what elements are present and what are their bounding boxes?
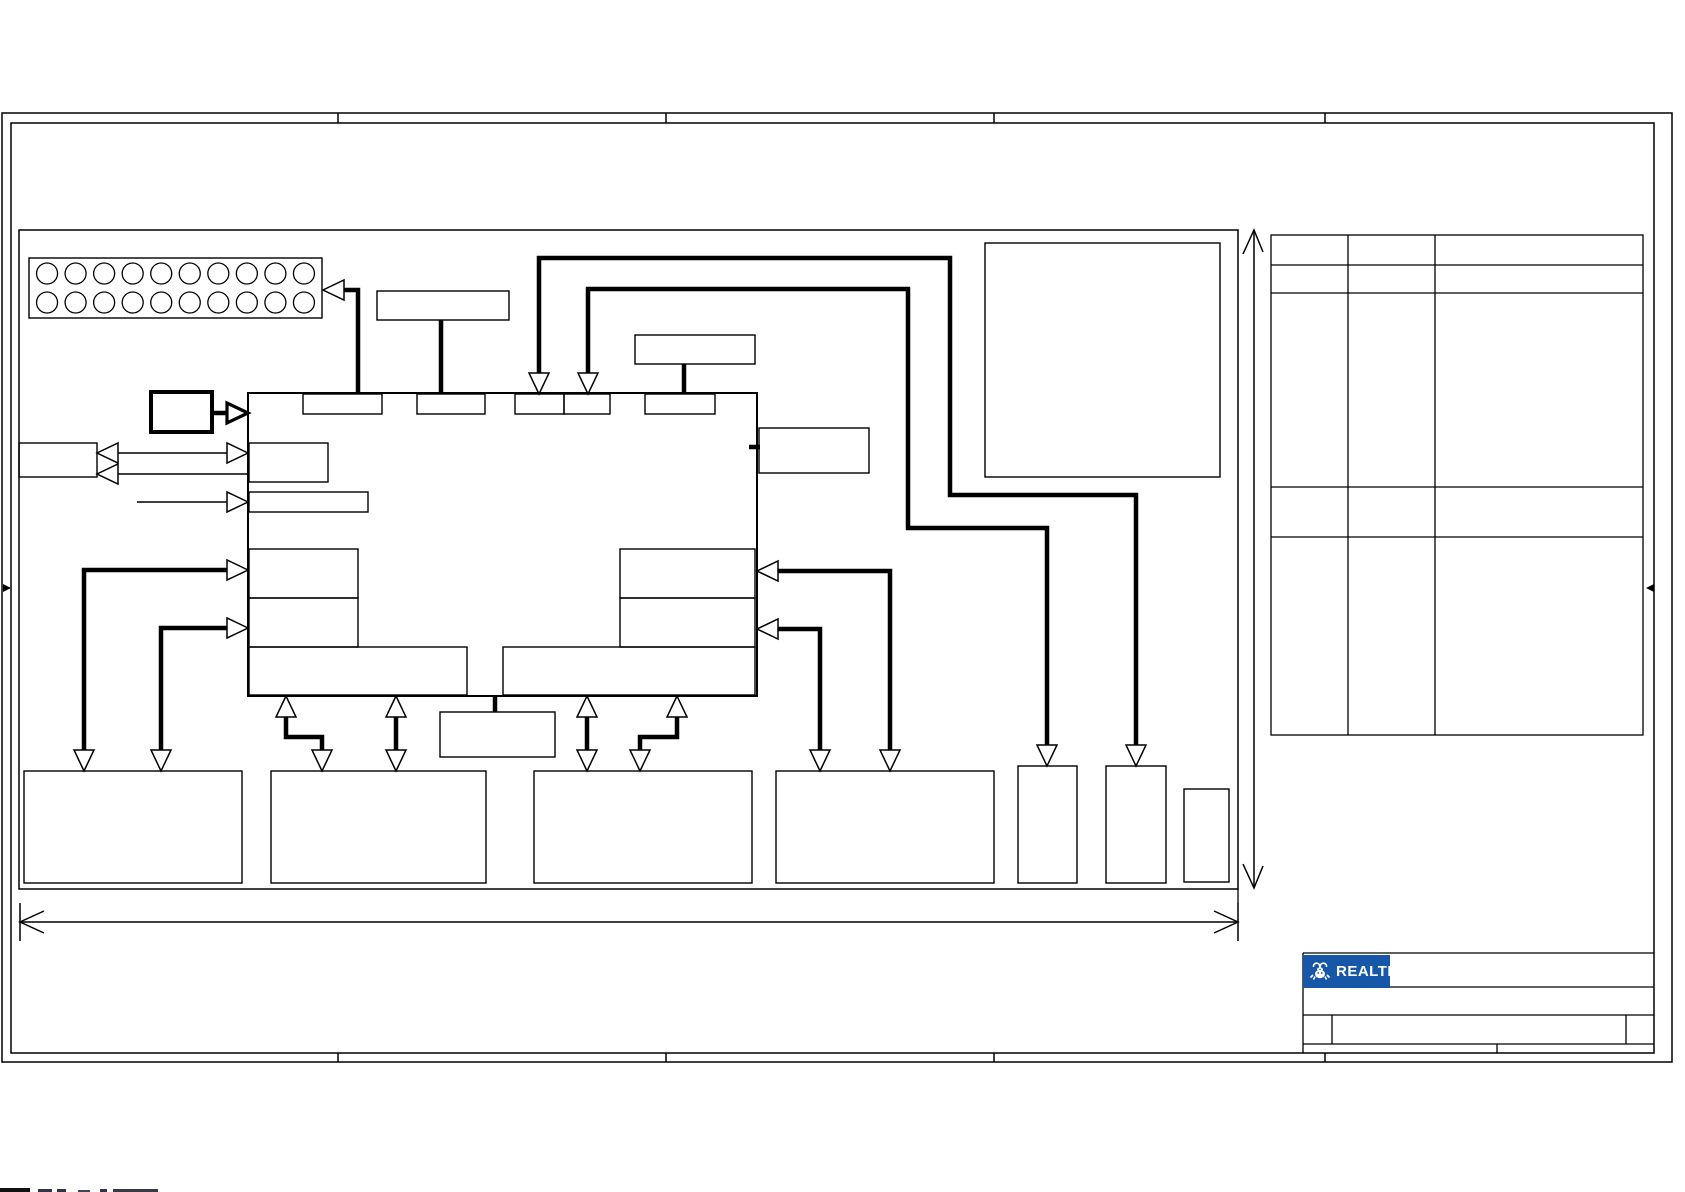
schematic-sheet: REALTEK: [0, 0, 1685, 1192]
big-topright-box: [985, 243, 1220, 477]
arrow-pin4-down: [578, 373, 598, 394]
dimension-arrowhead-up: [1243, 230, 1263, 254]
dimension-arrowhead-down: [1243, 864, 1263, 888]
connector-pin-circle: [179, 263, 200, 284]
wire-connector: [343, 290, 358, 392]
arrow-bus1-down: [386, 750, 406, 771]
arrow-smallbox1-down: [1037, 745, 1057, 766]
small-box-1: [1018, 766, 1077, 883]
right-side-box: [759, 428, 869, 473]
connector-pin-circle: [65, 292, 86, 313]
arrow-bus2-down: [577, 750, 597, 771]
chip-left-box-1: [249, 443, 328, 482]
bottom-box-3: [534, 771, 752, 883]
arrow-into-connector: [323, 280, 344, 300]
chip-left-box-4: [249, 598, 358, 647]
arrow-elbowL-down: [312, 750, 332, 771]
wire-left-2: [161, 628, 228, 751]
bottom-box-1: [24, 771, 242, 883]
chip-bottom-box-left: [249, 647, 467, 695]
small-box-3: [1184, 789, 1229, 882]
wire-right-1: [777, 571, 890, 751]
arrow-b1-a: [74, 750, 94, 771]
connector-pin-circle: [37, 263, 58, 284]
arrow-b1-b: [151, 750, 171, 771]
connector-pin-circle: [236, 263, 257, 284]
crystal-box: [151, 392, 212, 432]
pin-box-2: [417, 394, 485, 414]
chip-bottom-box-right: [503, 647, 755, 695]
connector-pin-circle: [293, 263, 314, 284]
top-box-2: [635, 335, 755, 364]
connector-pin-circle: [151, 263, 172, 284]
frame-outer-border: [2, 113, 1672, 1062]
wire-elbow-left: [286, 716, 322, 751]
wire-route-b: [588, 289, 1047, 746]
pin-box-3: [515, 394, 564, 414]
connector-pin-circle: [265, 292, 286, 313]
arrow-io-left-2: [97, 464, 118, 484]
left-io-box: [19, 443, 97, 477]
arrow-elbowL-up: [276, 696, 296, 717]
connector-pin-circle: [122, 292, 143, 313]
connector-block: [29, 258, 322, 318]
mid-bottom-box: [440, 712, 555, 757]
connector-pin-circle: [265, 263, 286, 284]
wire-left-1: [84, 570, 228, 751]
connector-pin-circle: [37, 292, 58, 313]
diagram-area-box: [19, 230, 1238, 889]
arrow-pin3-down: [529, 373, 549, 394]
bottom-box-2: [271, 771, 486, 883]
chip-left-box-2: [249, 492, 368, 512]
arrow-chipleft-2: [227, 492, 248, 512]
osc-box: [377, 291, 509, 320]
realtek-logo-text: REALTEK: [1336, 964, 1409, 979]
frame-center-marker-right: [1646, 584, 1654, 592]
wire-right-2: [777, 629, 820, 751]
arrow-chipright-2: [757, 619, 778, 639]
arrow-b4-a: [880, 750, 900, 771]
connector-pin-circle: [208, 263, 229, 284]
pin-box-4: [564, 394, 610, 414]
chip-right-box-2: [620, 598, 755, 647]
arrow-elbowR-up: [667, 696, 687, 717]
frame-inner-border: [11, 123, 1654, 1053]
realtek-logo: REALTEK: [1303, 955, 1390, 988]
pin-box-1: [303, 394, 382, 414]
arrow-chipleft-4: [227, 618, 248, 638]
connector-pin-circle: [94, 292, 115, 313]
chip-right-box-1: [620, 549, 755, 598]
connector-pin-circle: [65, 263, 86, 284]
reference-table-outline: [1271, 235, 1643, 735]
arrow-crystal-right: [227, 403, 248, 423]
frame-center-marker-left: [3, 584, 11, 592]
arrow-chipleft-1: [227, 443, 248, 463]
arrow-b4-b: [810, 750, 830, 771]
connector-pin-circle: [236, 292, 257, 313]
arrow-smallbox2-down: [1126, 745, 1146, 766]
arrow-io-left-1: [97, 443, 118, 463]
connector-pin-circle: [208, 292, 229, 313]
connector-pin-circle: [122, 263, 143, 284]
connector-pin-circle: [94, 263, 115, 284]
schematic-canvas: [0, 0, 1685, 1192]
arrow-bus2-up: [577, 696, 597, 717]
chip-left-box-3: [249, 549, 358, 598]
connector-pin-circle: [293, 292, 314, 313]
connector-pin-circle: [179, 292, 200, 313]
connector-pin-circle: [151, 292, 172, 313]
arrow-chipleft-3: [227, 560, 248, 580]
arrow-chipright-1: [757, 561, 778, 581]
cropped-text-fragment: [0, 1188, 30, 1192]
small-box-2: [1106, 766, 1166, 883]
arrow-elbowR-down: [630, 750, 650, 771]
bottom-box-4: [776, 771, 994, 883]
arrow-bus1-up: [386, 696, 406, 717]
wire-elbow-right: [640, 716, 677, 751]
realtek-crab-icon: [1309, 962, 1331, 982]
pin-box-5: [645, 394, 715, 414]
